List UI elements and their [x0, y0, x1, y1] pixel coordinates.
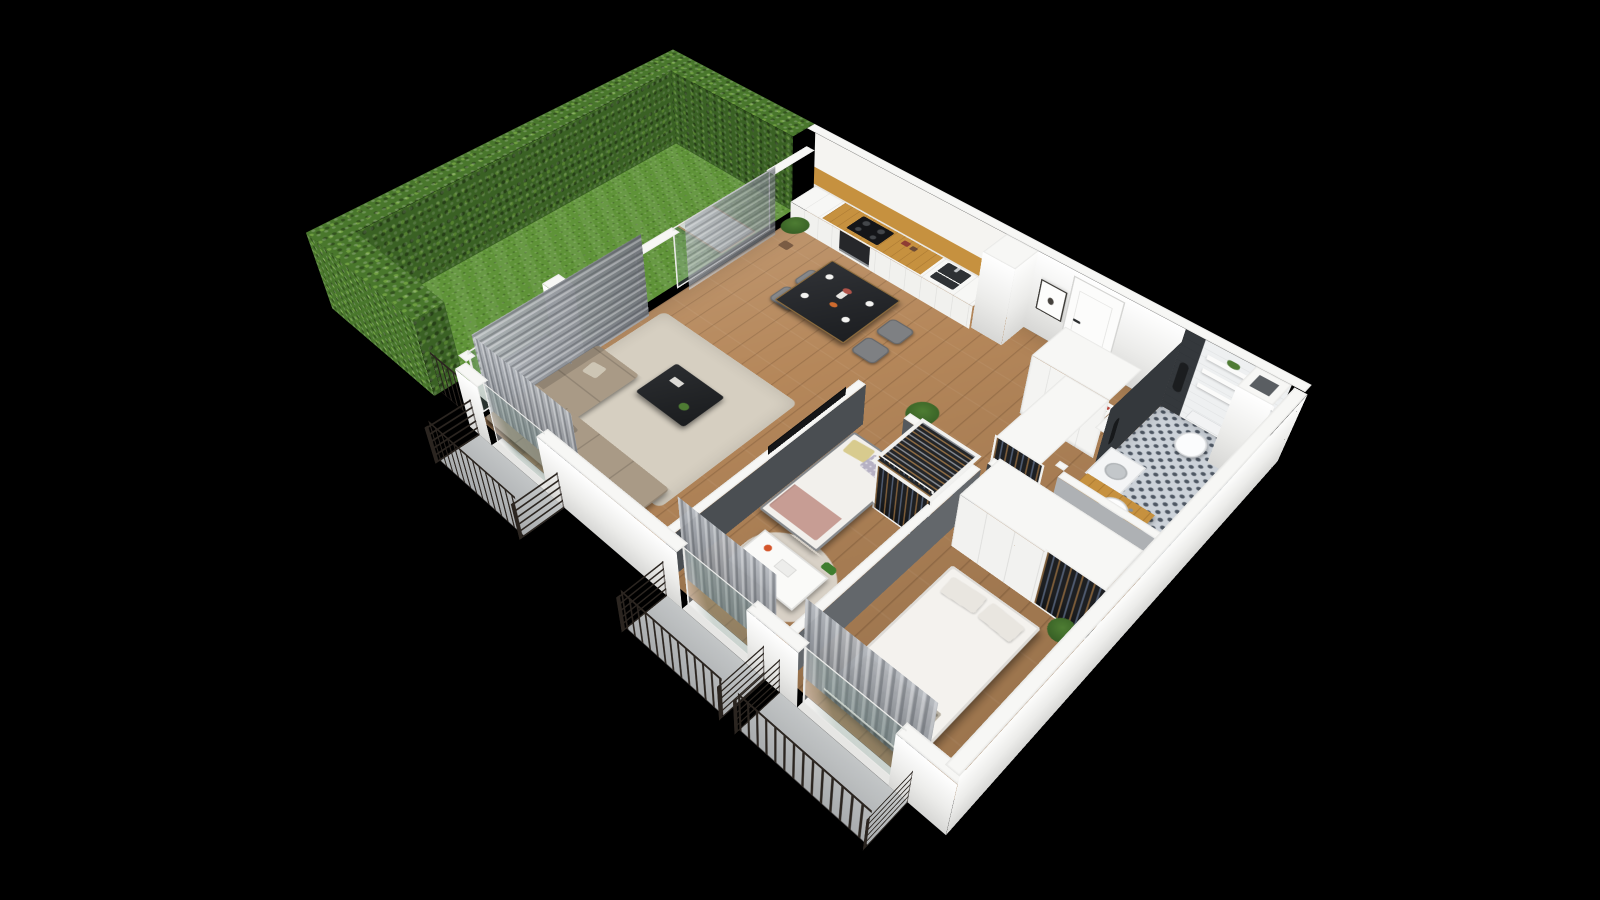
plate — [840, 316, 852, 324]
plate — [824, 273, 835, 280]
roof-shaft-opening — [1249, 375, 1279, 396]
plate — [864, 300, 876, 308]
apartment-floor-plan — [332, 121, 1277, 835]
plate — [799, 292, 811, 300]
render-canvas — [0, 0, 1600, 900]
coffee-table-book — [669, 377, 685, 388]
coffee-table-plant — [676, 401, 691, 412]
hanging-towel — [1172, 361, 1190, 394]
butterfly-motif — [1047, 296, 1054, 306]
desk-lamp — [762, 543, 774, 552]
faucet — [953, 266, 962, 272]
washer-door — [1100, 459, 1132, 483]
desk-papers — [773, 559, 797, 578]
orange-bowl — [828, 301, 839, 308]
hanging-towel-dark-wall — [1107, 416, 1120, 446]
